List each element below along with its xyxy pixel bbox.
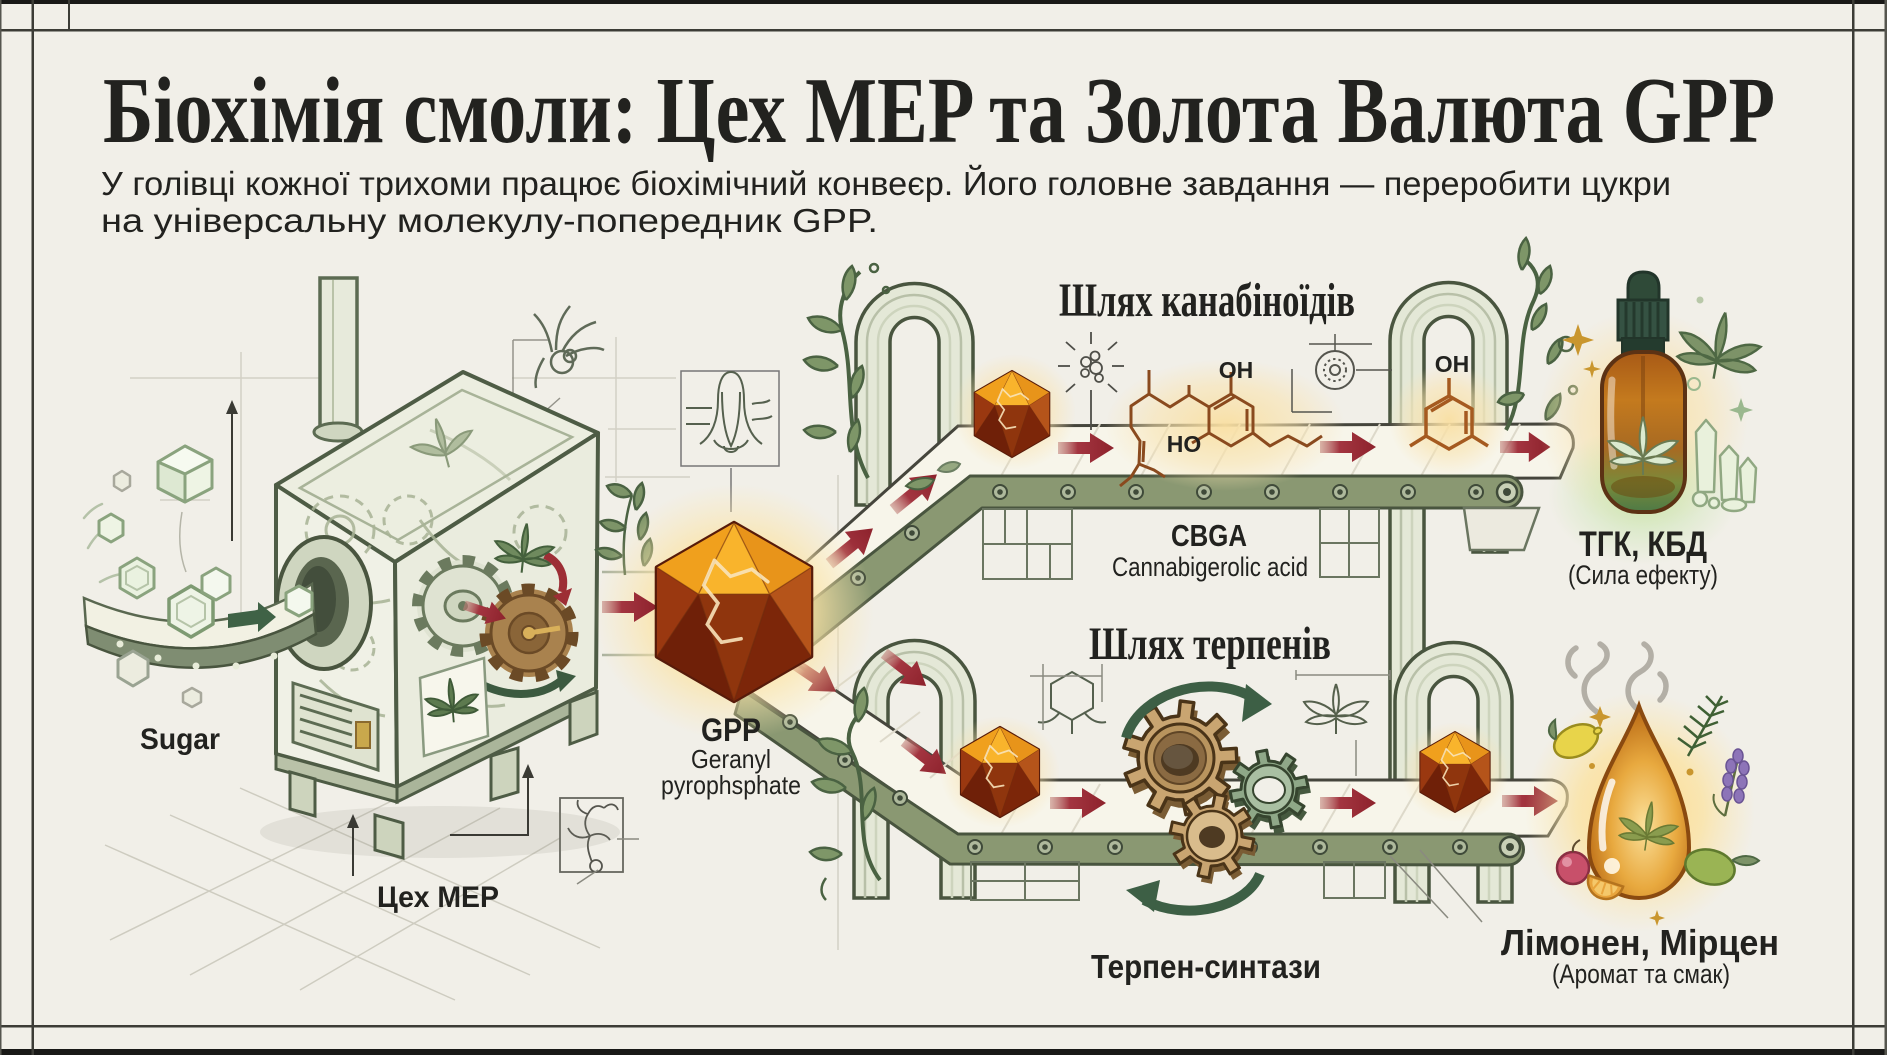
svg-text:GPP: GPP bbox=[701, 712, 761, 748]
svg-text:Sugar: Sugar bbox=[140, 723, 220, 756]
svg-text:(Сила ефекту): (Сила ефекту) bbox=[1568, 560, 1718, 590]
svg-text:CBGA: CBGA bbox=[1171, 518, 1247, 553]
svg-text:Лімонен, Мірцен: Лімонен, Мірцен bbox=[1501, 922, 1779, 963]
svg-text:(Аромат та смак): (Аромат та смак) bbox=[1552, 959, 1730, 989]
svg-text:Шлях канабіноїдів: Шлях канабіноїдів bbox=[1059, 274, 1355, 327]
svg-text:Терпен-синтази: Терпен-синтази bbox=[1091, 948, 1321, 985]
svg-text:Біохімія смоли: Цех MEP та Зол: Біохімія смоли: Цех MEP та Золота Валюта… bbox=[103, 59, 1775, 163]
svg-text:ТГК, КБД: ТГК, КБД bbox=[1579, 525, 1707, 564]
svg-text:на універсальну молекулу-попер: на універсальну молекулу-попередник GPP. bbox=[101, 202, 878, 239]
svg-text:OH: OH bbox=[1219, 357, 1254, 383]
svg-text:У голівці кожної трихоми працю: У голівці кожної трихоми працює біохіміч… bbox=[101, 165, 1671, 202]
svg-text:OH: OH bbox=[1435, 351, 1470, 377]
svg-text:Цех MEP: Цех MEP bbox=[377, 881, 499, 914]
svg-text:Cannabigerolic acid: Cannabigerolic acid bbox=[1112, 552, 1308, 582]
svg-text:pyrophsphate: pyrophsphate bbox=[661, 770, 801, 800]
svg-text:Шлях терпенів: Шлях терпенів bbox=[1089, 618, 1331, 670]
svg-text:HO: HO bbox=[1167, 431, 1202, 457]
